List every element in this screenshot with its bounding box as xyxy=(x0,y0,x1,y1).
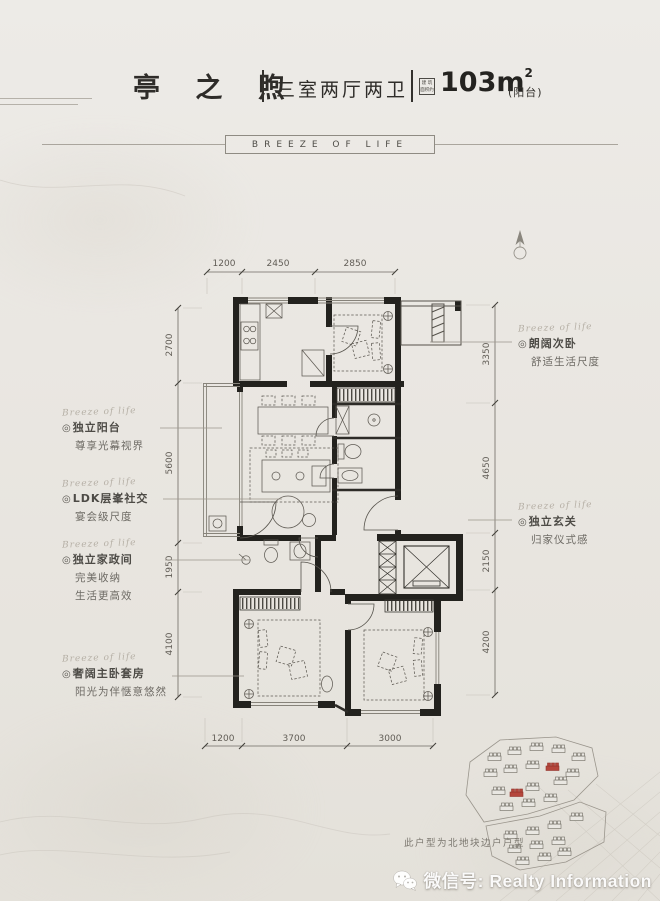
annotation-foyer: Breeze of life ◎独立玄关 归家仪式感 xyxy=(518,500,660,547)
annotation-line: 尊享光幕视界 xyxy=(75,438,212,453)
svg-text:3000: 3000 xyxy=(379,734,402,744)
svg-text:2450: 2450 xyxy=(267,259,290,269)
svg-text:2150: 2150 xyxy=(482,549,492,572)
bullet-icon: ◎ xyxy=(62,669,72,680)
annotation-ldk: Breeze of life ◎LDK层峯社交 宴会级尺度 xyxy=(62,477,212,524)
annotation-second-bedroom: Breeze of life ◎朗阔次卧 舒适生活尺度 xyxy=(518,322,660,369)
watermark: 微信号: Realty Information xyxy=(393,868,652,893)
site-plan xyxy=(466,737,606,870)
annotation-title: 朗阔次卧 xyxy=(529,337,577,350)
annotation-line: 舒适生活尺度 xyxy=(531,354,660,369)
ac-balcony xyxy=(401,301,461,345)
site-plan-note: 此户型为北地块边户户型 xyxy=(404,835,525,849)
annotation-housekeeping: Breeze of life ◎独立家政间 完美收纳 生活更高效 xyxy=(62,538,212,603)
svg-text:4200: 4200 xyxy=(482,630,492,653)
annotation-line: 阳光为伴惬意悠然 xyxy=(75,684,212,699)
watermark-text: 微信号: Realty Information xyxy=(424,868,652,893)
north-arrow-icon xyxy=(514,230,526,259)
svg-text:2850: 2850 xyxy=(344,259,367,269)
svg-text:1200: 1200 xyxy=(212,734,235,744)
script-flourish: Breeze of life xyxy=(518,497,660,512)
bullet-icon: ◎ xyxy=(518,339,528,350)
svg-text:3700: 3700 xyxy=(283,734,306,744)
annotation-title: 独立家政间 xyxy=(73,553,133,566)
wechat-icon xyxy=(393,870,417,891)
svg-text:3350: 3350 xyxy=(482,342,492,365)
svg-text:1200: 1200 xyxy=(213,259,236,269)
script-flourish: Breeze of life xyxy=(62,474,212,489)
bullet-icon: ◎ xyxy=(62,494,72,505)
annotation-master-suite: Breeze of life ◎奢阔主卧套房 阳光为伴惬意悠然 xyxy=(62,652,212,699)
bullet-icon: ◎ xyxy=(62,555,72,566)
bullet-icon: ◎ xyxy=(62,423,72,434)
script-flourish: Breeze of life xyxy=(62,403,212,418)
annotation-title: 奢阔主卧套房 xyxy=(73,667,145,680)
bullet-icon: ◎ xyxy=(518,517,528,528)
svg-text:5600: 5600 xyxy=(165,451,175,474)
annotation-title: 独立阳台 xyxy=(73,421,121,434)
annotation-line: 归家仪式感 xyxy=(531,532,660,547)
annotation-line: 完美收纳 xyxy=(75,570,212,585)
script-flourish: Breeze of life xyxy=(518,319,660,334)
annotation-balcony: Breeze of life ◎独立阳台 尊享光幕视界 xyxy=(62,406,212,453)
svg-text:4650: 4650 xyxy=(482,456,492,479)
annotation-title: LDK层峯社交 xyxy=(73,492,149,505)
annotation-title: 独立玄关 xyxy=(529,515,577,528)
svg-text:2700: 2700 xyxy=(165,333,175,356)
dimensions: 1200 2450 2850 1200 3700 3000 2700 5600 … xyxy=(165,259,498,749)
annotation-line: 生活更高效 xyxy=(75,588,212,603)
elevator xyxy=(379,541,449,594)
script-flourish: Breeze of life xyxy=(62,535,212,550)
script-flourish: Breeze of life xyxy=(62,649,212,664)
annotation-line: 宴会级尺度 xyxy=(75,509,212,524)
floor-plan-flyer: 亭 之 煦 三室两厅两卫 建 筑 面积约 103m2 (阳台) BREEZE O… xyxy=(0,0,660,901)
